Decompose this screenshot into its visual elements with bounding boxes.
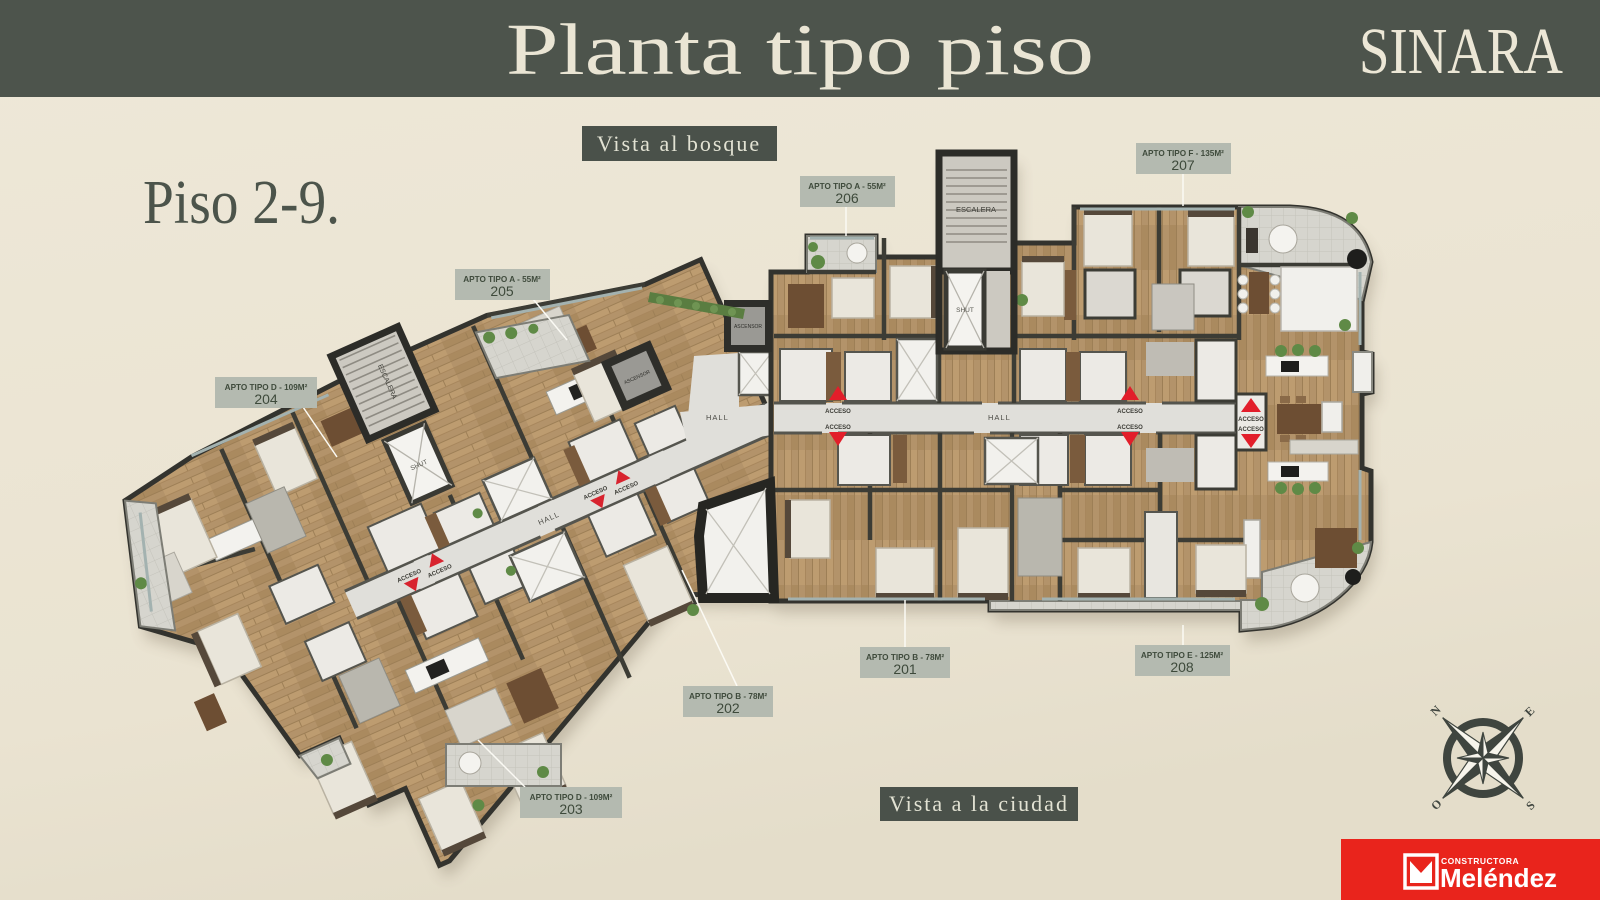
svg-text:Piso 2-9.: Piso 2-9. <box>143 169 340 237</box>
svg-text:207: 207 <box>1171 157 1195 173</box>
svg-text:203: 203 <box>559 801 583 817</box>
svg-text:ACCESO: ACCESO <box>1117 409 1143 415</box>
svg-text:HALL: HALL <box>706 413 729 422</box>
svg-text:Vista al bosque: Vista al bosque <box>597 131 761 156</box>
svg-text:205: 205 <box>490 283 514 299</box>
svg-text:204: 204 <box>254 391 278 407</box>
svg-text:201: 201 <box>893 661 917 677</box>
svg-text:ACCESO: ACCESO <box>825 409 851 415</box>
svg-text:202: 202 <box>716 700 740 716</box>
svg-text:Planta tipo piso: Planta tipo piso <box>506 9 1094 90</box>
svg-text:ACCESO: ACCESO <box>825 425 851 431</box>
svg-text:SINARA: SINARA <box>1359 15 1563 88</box>
svg-text:HALL: HALL <box>988 413 1011 422</box>
svg-text:ACCESO: ACCESO <box>1238 427 1264 433</box>
svg-text:ESCALERA: ESCALERA <box>956 205 996 214</box>
svg-text:ACCESO: ACCESO <box>1117 425 1143 431</box>
svg-text:SHUT: SHUT <box>956 307 974 314</box>
svg-text:ACCESO: ACCESO <box>1238 417 1264 423</box>
svg-text:Meléndez: Meléndez <box>1440 863 1557 893</box>
svg-text:206: 206 <box>835 190 859 206</box>
svg-text:208: 208 <box>1170 659 1194 675</box>
svg-text:Vista a la ciudad: Vista a la ciudad <box>889 791 1069 816</box>
svg-text:ASCENSOR: ASCENSOR <box>734 324 762 330</box>
